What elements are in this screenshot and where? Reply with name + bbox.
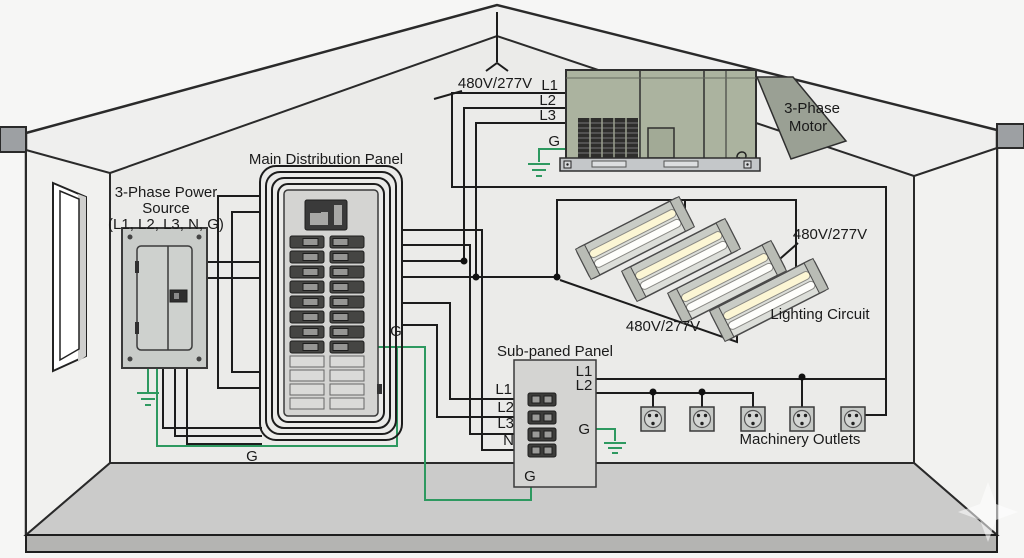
- sub-panel-ground-bottom-label: G: [524, 468, 536, 485]
- diagram-canvas: 480V/277V L1 L2 L3 G 3-Phase Motor Main …: [0, 0, 1024, 558]
- hinge-top: [135, 261, 139, 273]
- sub-panel-input-l3: L3: [497, 415, 514, 432]
- window: [53, 183, 86, 371]
- outlet-2: [690, 407, 714, 431]
- sub-panel-input-n: N: [503, 432, 514, 449]
- outlet-1: [641, 407, 665, 431]
- motor-ground-label: G: [548, 133, 560, 150]
- motor-access-door: [648, 128, 674, 158]
- source-title-line2: Source: [142, 200, 190, 217]
- sub-panel-ground-side-label: G: [578, 421, 590, 438]
- lighting-voltage-bottom-label: 480V/277V: [626, 318, 700, 335]
- motor-l3-label: L3: [539, 107, 556, 124]
- main-panel-ground-label: G: [390, 323, 402, 340]
- motor-title-line1: 3-Phase: [784, 100, 840, 117]
- source-title-line1: 3-Phase Power: [115, 184, 218, 201]
- machinery-outlets-label: Machinery Outlets: [740, 431, 861, 448]
- panel-side-clip: [377, 384, 382, 394]
- hinge-bottom: [135, 322, 139, 334]
- main-panel-title: Main Distribution Panel: [249, 151, 403, 168]
- motor-base: [560, 158, 760, 171]
- sub-panel-input-l1: L1: [495, 381, 512, 398]
- power-source-panel: [122, 228, 207, 368]
- sub-panel-title: Sub-paned Panel: [497, 343, 613, 360]
- lighting-voltage-right-label: 480V/277V: [793, 226, 867, 243]
- floor-slab-front: [26, 535, 997, 552]
- source-title-line3: (L1, L2, L3, N, G): [108, 216, 224, 233]
- motor-title-line2: Motor: [789, 118, 827, 135]
- motor-grille: [578, 118, 638, 158]
- outlet-3: [741, 407, 765, 431]
- main-breaker: [305, 200, 347, 230]
- ground-bus-label: G: [246, 448, 258, 465]
- sub-panel-output-l2: L2: [576, 377, 593, 394]
- outlet-4: [790, 407, 814, 431]
- sub-panel-input-l2: L2: [497, 399, 514, 416]
- wiring-diagram: 480V/277V L1 L2 L3 G 3-Phase Motor Main …: [0, 0, 1024, 558]
- lighting-circuit-label: Lighting Circuit: [770, 306, 870, 323]
- voltage-top-label: 480V/277V: [458, 75, 532, 92]
- right-eave-overhang: [997, 124, 1024, 148]
- left-eave-overhang: [0, 127, 26, 152]
- outlet-5: [841, 407, 865, 431]
